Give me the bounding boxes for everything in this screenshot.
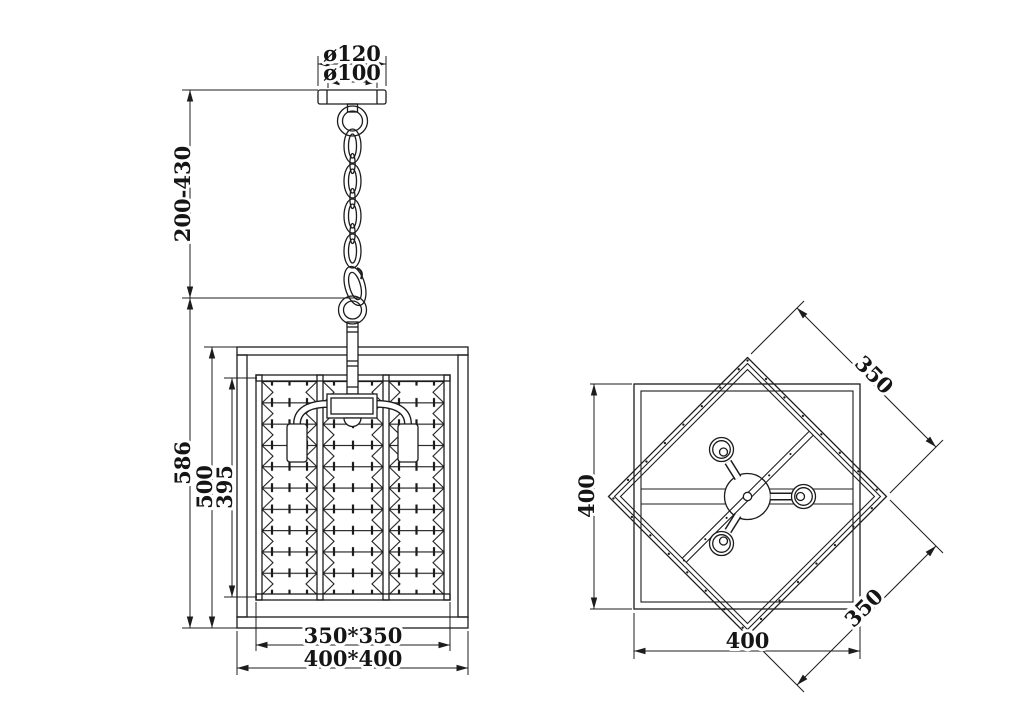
crystal-rail xyxy=(317,375,323,600)
dim-chain-range: 200-430 xyxy=(170,146,195,242)
dim-frame-width: 400*400 xyxy=(304,646,403,671)
hub-center-hole xyxy=(743,492,751,500)
dim-crystal-width: 350*350 xyxy=(304,623,403,648)
stem xyxy=(347,322,358,394)
canopy xyxy=(318,90,386,112)
drawing-canvas: ø120 ø100 200-430 586 500 395 350*350 40… xyxy=(0,0,1024,723)
crystal-bottom-rail xyxy=(256,594,450,600)
dim-crystal-height: 395 xyxy=(212,465,237,509)
right-socket xyxy=(398,424,418,462)
dim-diamond-top: 350 xyxy=(850,350,899,399)
crystal-rail xyxy=(256,375,262,600)
technical-drawing: ø120 ø100 200-430 586 500 395 350*350 40… xyxy=(0,0,1024,723)
left-socket xyxy=(287,424,307,462)
dim-canopy-inner: ø100 xyxy=(323,60,381,85)
front-view xyxy=(182,56,468,675)
dim-diamond-bottom: 350 xyxy=(839,583,888,632)
crystal-rail xyxy=(444,375,450,600)
chain xyxy=(338,106,370,324)
dim-top-depth: 400 xyxy=(574,474,599,518)
dim-top-width: 400 xyxy=(726,628,770,653)
